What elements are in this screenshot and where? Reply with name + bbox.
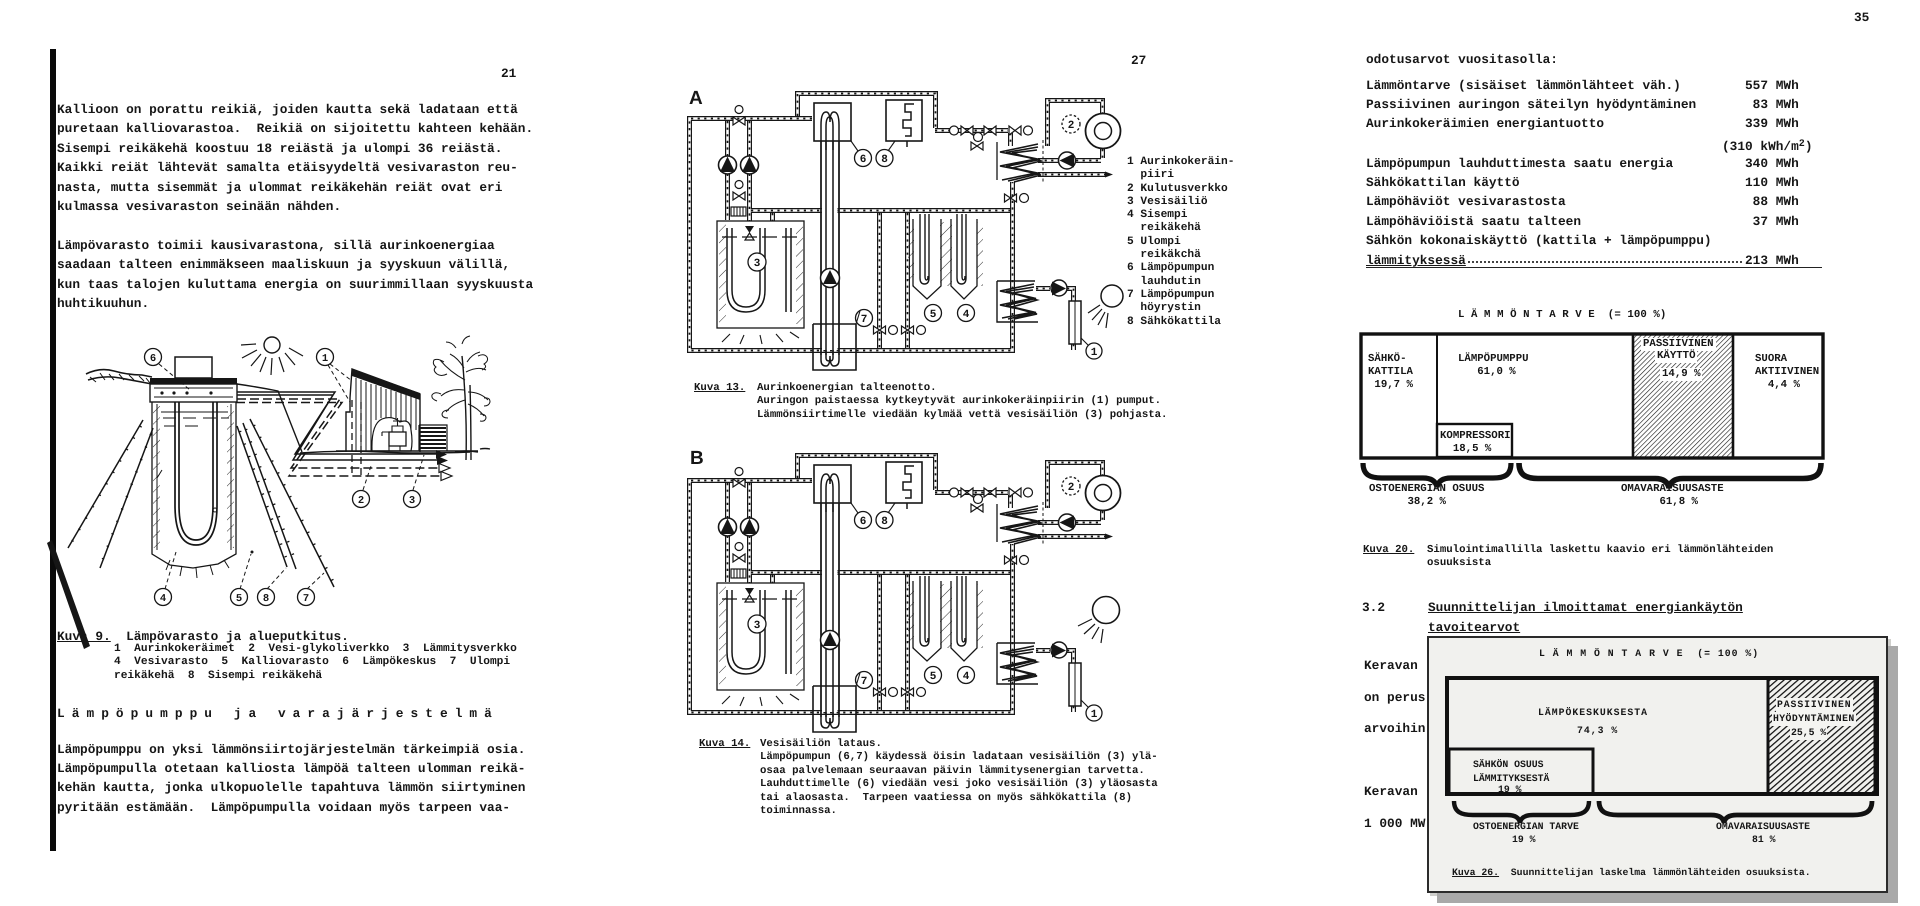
svg-text:8: 8 [881, 154, 888, 166]
svg-text:3: 3 [754, 258, 761, 270]
svg-text:7: 7 [861, 314, 868, 326]
svg-text:2: 2 [358, 495, 364, 507]
svg-text:4: 4 [160, 593, 166, 605]
svg-text:4: 4 [963, 309, 970, 321]
svg-text:2: 2 [1068, 120, 1075, 132]
svg-text:1: 1 [322, 353, 328, 365]
svg-text:3: 3 [409, 495, 415, 507]
svg-text:5: 5 [930, 309, 937, 321]
svg-text:6: 6 [150, 353, 156, 365]
svg-text:1: 1 [1091, 347, 1098, 359]
svg-text:6: 6 [860, 154, 867, 166]
svg-text:5: 5 [236, 593, 242, 605]
svg-text:7: 7 [303, 593, 309, 605]
svg-text:8: 8 [263, 593, 269, 605]
